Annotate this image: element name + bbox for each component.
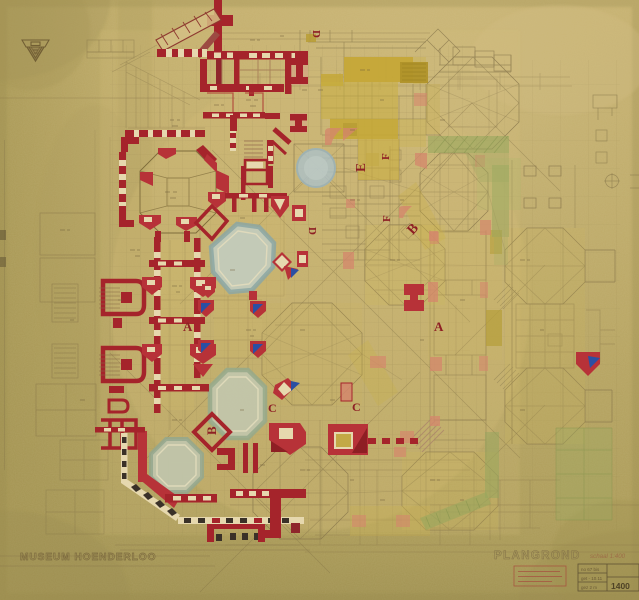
svg-text:F: F [381,215,393,222]
svg-text:D: D [306,227,318,235]
svg-text:F: F [380,153,392,160]
svg-text:no 67 bis: no 67 bis [581,567,600,572]
svg-text:E: E [353,163,368,172]
svg-text:D: D [310,30,322,38]
svg-text:A: A [183,319,193,334]
svg-text:gez 2 m: gez 2 m [581,585,597,590]
svg-text:get - 10.11: get - 10.11 [581,576,603,581]
svg-text:MUSEUM HOENDERLOO: MUSEUM HOENDERLOO [20,552,156,563]
svg-text:B: B [204,426,219,435]
svg-text:1400: 1400 [611,581,630,591]
svg-text:A: A [434,319,444,334]
svg-text:schaal 1:400: schaal 1:400 [590,553,626,560]
svg-text:PLANGROND: PLANGROND [494,550,581,562]
svg-text:C: C [268,401,277,415]
svg-text:C: C [352,400,361,414]
